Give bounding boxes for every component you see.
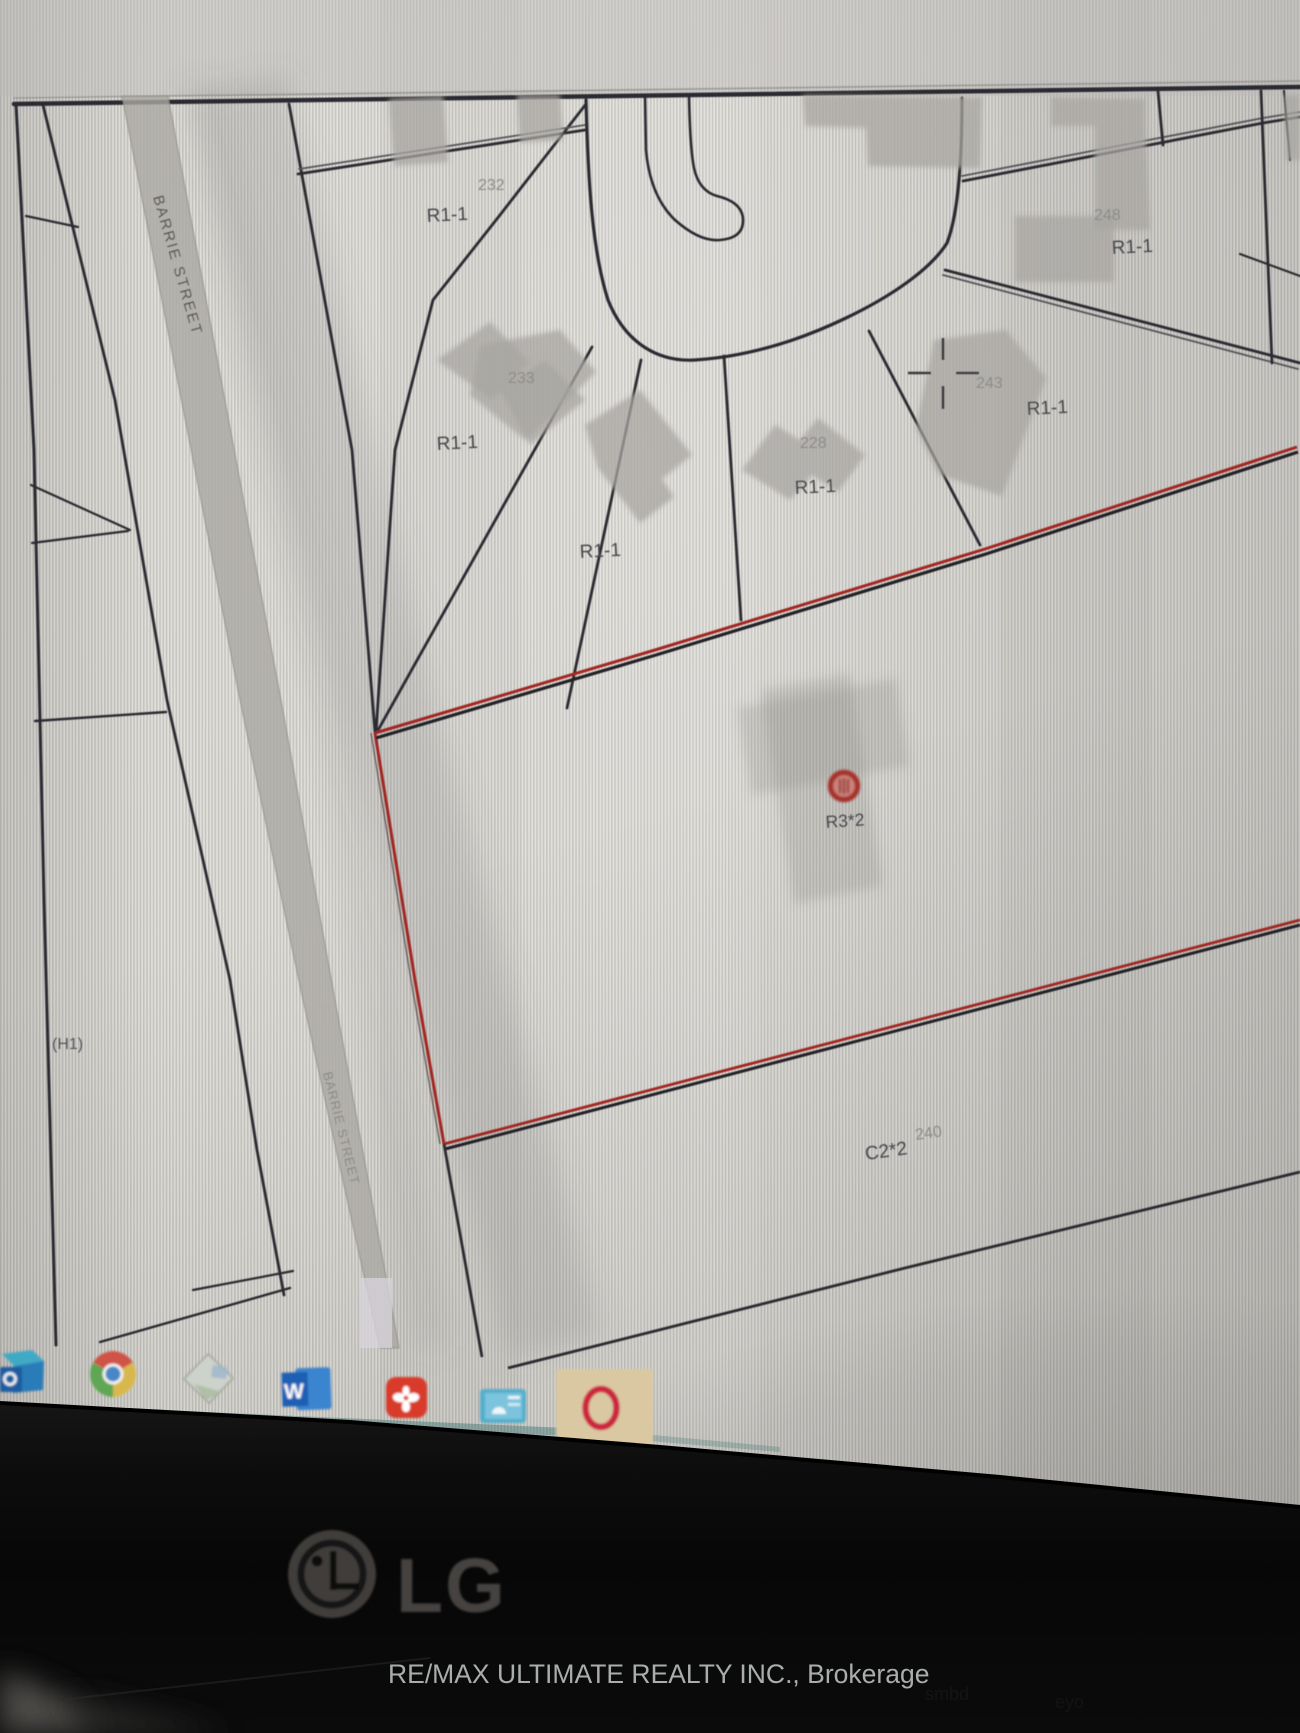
svg-text:smbd: smbd [925, 1684, 969, 1704]
svg-text:RE/MAX ULTIMATE REALTY INC., B: RE/MAX ULTIMATE REALTY INC., Brokerage [388, 1659, 929, 1689]
svg-text:R1-1: R1-1 [1111, 236, 1153, 259]
svg-text:233: 233 [508, 370, 535, 387]
svg-text:eyo: eyo [1055, 1692, 1084, 1712]
svg-text:R1-1: R1-1 [436, 432, 478, 455]
svg-text:228: 228 [800, 435, 827, 452]
svg-text:R1-1: R1-1 [1026, 397, 1068, 420]
svg-text:LG: LG [396, 1543, 507, 1629]
svg-text:W: W [284, 1380, 305, 1404]
svg-text:R3*2: R3*2 [825, 809, 865, 832]
svg-text:(H1): (H1) [52, 1036, 83, 1053]
svg-text:248: 248 [1094, 207, 1121, 224]
svg-text:R1-1: R1-1 [579, 540, 621, 563]
svg-text:243: 243 [976, 375, 1003, 392]
svg-text:232: 232 [478, 177, 505, 194]
svg-text:R1-1: R1-1 [426, 204, 468, 227]
svg-text:R1-1: R1-1 [794, 476, 836, 499]
